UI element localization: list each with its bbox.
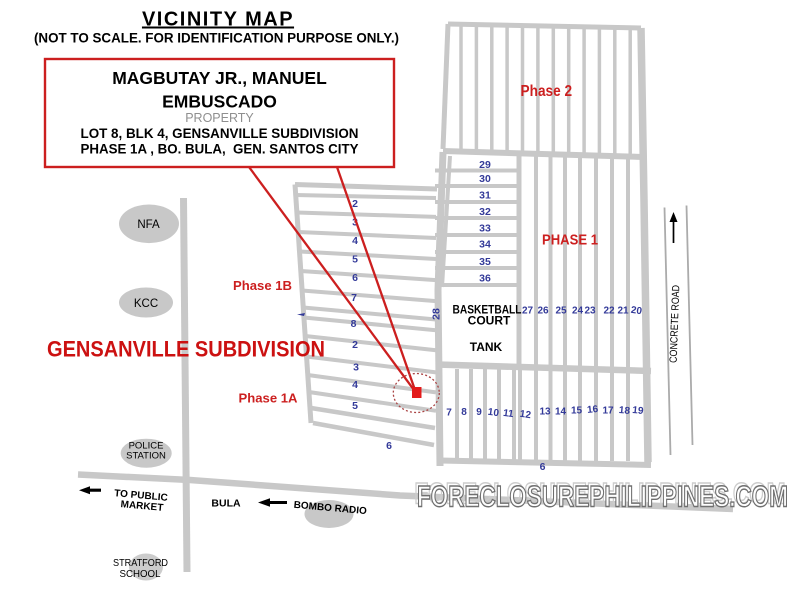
svg-text:TANK: TANK: [470, 340, 503, 354]
svg-text:8: 8: [351, 318, 357, 330]
svg-text:19: 19: [632, 405, 645, 417]
svg-text:25: 25: [555, 306, 567, 317]
svg-text:18: 18: [618, 405, 631, 417]
svg-text:2: 2: [352, 339, 358, 351]
svg-text:32: 32: [479, 206, 491, 218]
svg-text:11: 11: [502, 408, 514, 420]
svg-text:21: 21: [617, 306, 629, 317]
svg-text:7: 7: [446, 408, 452, 419]
svg-text:2: 2: [352, 198, 358, 210]
svg-text:Phase 1A: Phase 1A: [239, 391, 298, 406]
svg-text:8: 8: [461, 407, 467, 418]
svg-text:BULA: BULA: [211, 498, 241, 510]
svg-text:LOT 8, BLK 4, GENSANVILLE SUBD: LOT 8, BLK 4, GENSANVILLE SUBDIVISION: [81, 126, 359, 142]
svg-text:PHASE 1A , BO. BULA, GEN. SAN: PHASE 1A , BO. BULA, GEN. SANTOS CITY: [81, 142, 359, 158]
svg-text:4: 4: [352, 379, 358, 391]
svg-text:FORECLOSUREPHILIPPINES.COM: FORECLOSUREPHILIPPINES.COM: [417, 481, 788, 514]
svg-text:29: 29: [479, 159, 491, 171]
svg-text:7: 7: [351, 292, 357, 304]
svg-text:20: 20: [630, 305, 643, 318]
svg-text:SCHOOL: SCHOOL: [120, 568, 161, 580]
svg-text:22: 22: [603, 306, 615, 317]
svg-text:5: 5: [352, 400, 358, 412]
svg-text:31: 31: [479, 190, 491, 202]
svg-text:16: 16: [587, 404, 600, 416]
svg-text:28: 28: [431, 308, 443, 320]
svg-text:9: 9: [476, 407, 482, 418]
svg-text:KCC: KCC: [134, 298, 158, 310]
svg-text:STATION: STATION: [126, 451, 166, 462]
svg-text:GENSANVILLE SUBDIVISION: GENSANVILLE SUBDIVISION: [47, 337, 325, 362]
svg-text:MAGBUTAY JR., MANUEL: MAGBUTAY JR., MANUEL: [112, 68, 327, 88]
svg-text:PHASE 1: PHASE 1: [542, 232, 598, 249]
svg-text:3: 3: [353, 362, 359, 374]
svg-text:PROPERTY: PROPERTY: [185, 111, 254, 125]
svg-text:12: 12: [519, 409, 532, 422]
svg-text:15: 15: [571, 406, 583, 417]
svg-text:13: 13: [539, 407, 551, 418]
svg-text:6: 6: [540, 461, 546, 473]
svg-text:23: 23: [584, 306, 596, 317]
svg-text:35: 35: [479, 256, 491, 268]
svg-text:27: 27: [522, 306, 534, 317]
svg-text:33: 33: [479, 223, 491, 235]
svg-text:6: 6: [386, 440, 392, 452]
svg-text:36: 36: [479, 273, 491, 285]
svg-text:17: 17: [602, 406, 614, 417]
svg-text:NFA: NFA: [137, 219, 160, 231]
svg-text:10: 10: [487, 407, 500, 420]
svg-text:26: 26: [537, 306, 549, 317]
svg-text:VICINITY MAP: VICINITY MAP: [142, 9, 294, 31]
svg-text:34: 34: [479, 239, 491, 251]
svg-text:(NOT TO SCALE. FOR IDENTIFICAT: (NOT TO SCALE. FOR IDENTIFICATION PURPOS…: [34, 31, 399, 46]
svg-text:30: 30: [479, 173, 491, 185]
svg-text:5: 5: [352, 254, 358, 266]
svg-text:6: 6: [352, 272, 358, 284]
svg-text:14: 14: [555, 407, 567, 418]
svg-text:24: 24: [572, 306, 584, 317]
svg-text:EMBUSCADO: EMBUSCADO: [162, 92, 277, 112]
svg-text:Phase 1B: Phase 1B: [233, 278, 292, 293]
svg-text:COURT: COURT: [468, 314, 511, 328]
svg-text:Phase 2: Phase 2: [521, 83, 573, 100]
svg-text:4: 4: [352, 235, 358, 247]
